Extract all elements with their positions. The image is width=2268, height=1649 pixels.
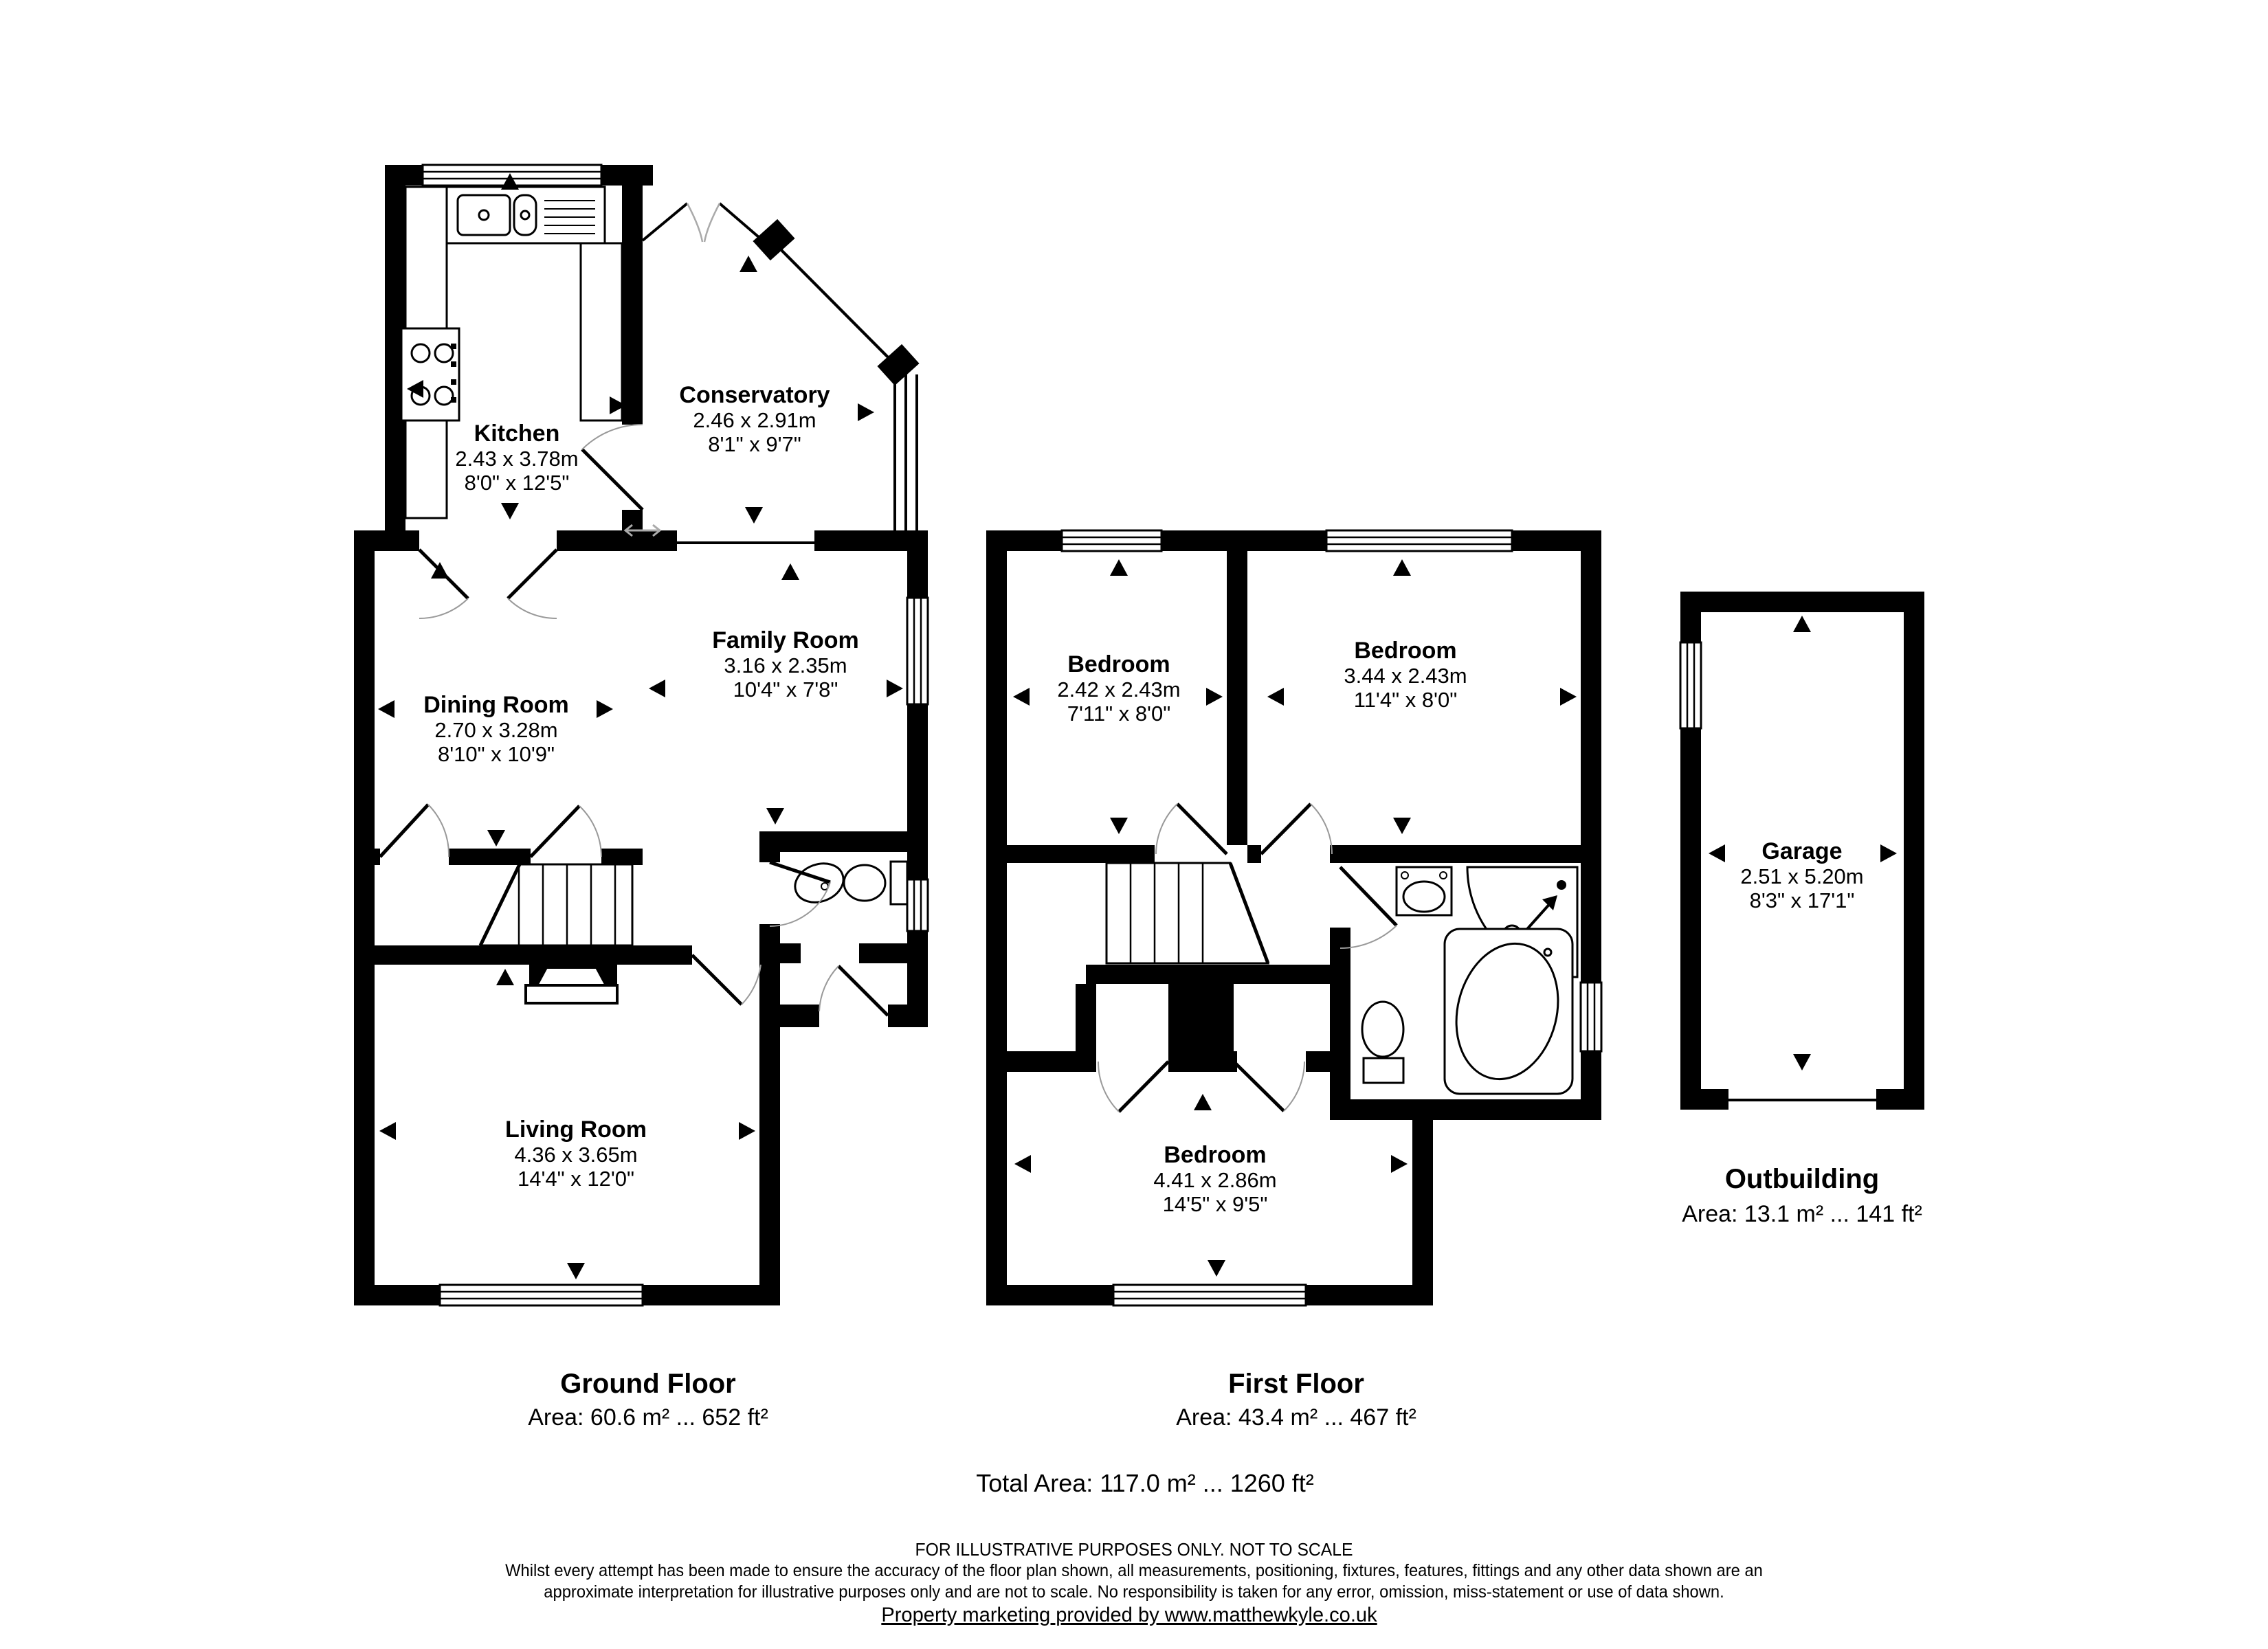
measure-arrow-icon (887, 680, 903, 697)
measure-arrow-icon (1393, 559, 1411, 576)
measure-arrow-icon (1880, 844, 1897, 862)
measure-arrow-icon (745, 507, 763, 524)
room-dim-metric: 2.42 x 2.43m (1057, 677, 1180, 702)
room-name: Bedroom (1057, 651, 1180, 677)
measure-arrow-icon (597, 700, 613, 718)
glazing-post (877, 344, 919, 385)
measure-arrow-icon (1709, 844, 1725, 862)
bathroom-window (1581, 983, 1601, 1051)
glazing-post (753, 219, 794, 260)
room-name: Bedroom (1153, 1142, 1276, 1168)
room-dim-imperial: 8'1" x 9'7" (679, 432, 830, 456)
room-name: Family Room (712, 627, 858, 653)
room-dim-imperial: 14'5" x 9'5" (1153, 1192, 1276, 1216)
room-dim-imperial: 8'0" x 12'5" (455, 471, 578, 495)
measure-arrow-icon (1793, 616, 1811, 632)
bathroom-fixtures (1362, 867, 1577, 1094)
kitchen-counter (581, 243, 622, 420)
dining-hall-door (380, 805, 449, 857)
measure-arrow-icon (1013, 688, 1030, 706)
bedroom2-window (1326, 530, 1512, 551)
room-name: Conservatory (679, 382, 830, 408)
room-label-bedroom-3: Bedroom 4.41 x 2.86m 14'5" x 9'5" (1153, 1142, 1276, 1216)
french-door-swing (704, 203, 720, 242)
ground-floor-area: Area: 60.6 m² ... 652 ft² (528, 1404, 768, 1431)
measure-arrow-icon (1110, 559, 1128, 576)
total-area: Total Area: 117.0 m² ... 1260 ft² (976, 1469, 1314, 1498)
measure-arrow-icon (1560, 688, 1577, 706)
measure-arrow-icon (1206, 688, 1223, 706)
living-room-window (440, 1285, 643, 1305)
measure-arrow-icon (496, 969, 514, 985)
front-door (819, 966, 888, 1016)
room-dim-metric: 4.36 x 3.65m (505, 1143, 647, 1167)
room-label-kitchen: Kitchen 2.43 x 3.78m 8'0" x 12'5" (455, 420, 578, 495)
kitchen-dining-doors (419, 550, 557, 618)
measure-arrow-icon (487, 830, 505, 846)
first-floor-heading: First Floor (1228, 1369, 1364, 1400)
room-label-living-room: Living Room 4.36 x 3.65m 14'4" x 12'0" (505, 1117, 647, 1191)
room-dim-metric: 3.16 x 2.35m (712, 653, 858, 677)
measure-arrow-icon (1267, 688, 1284, 706)
floorplan-page: Kitchen 2.43 x 3.78m 8'0" x 12'5" Conser… (0, 0, 2268, 1649)
outbuilding-area: Area: 13.1 m² ... 141 ft² (1682, 1201, 1922, 1228)
measure-arrow-icon (1393, 818, 1411, 834)
room-label-garage: Garage 2.51 x 5.20m 8'3" x 17'1" (1740, 838, 1863, 912)
bedroom1-door (1156, 804, 1227, 854)
ground-floor-heading: Ground Floor (560, 1369, 736, 1400)
illustrative-notice: FOR ILLUSTRATIVE PURPOSES ONLY. NOT TO S… (915, 1539, 1353, 1560)
measure-arrow-icon (1014, 1155, 1031, 1173)
family-room-window (907, 598, 928, 704)
room-label-family-room: Family Room 3.16 x 2.35m 10'4" x 7'8" (712, 627, 858, 702)
room-name: Kitchen (455, 420, 578, 447)
wc-basin (790, 857, 849, 908)
measure-arrow-icon (766, 808, 784, 824)
room-dim-imperial: 8'3" x 17'1" (1740, 888, 1863, 912)
bedroom3-door-left (1098, 1062, 1168, 1112)
room-dim-metric: 2.70 x 3.28m (423, 718, 569, 742)
measure-arrow-icon (567, 1263, 585, 1279)
measure-arrow-icon (1208, 1260, 1225, 1277)
room-dim-metric: 2.43 x 3.78m (455, 447, 578, 471)
stairs-door (531, 806, 601, 857)
measure-arrow-icon (1391, 1155, 1408, 1173)
bathtub (1443, 929, 1572, 1094)
measure-arrow-icon (781, 563, 799, 580)
measure-arrow-icon (378, 700, 394, 718)
measure-arrow-icon (1793, 1054, 1811, 1070)
conservatory-structure (625, 203, 920, 543)
bedroom3-window (1113, 1285, 1306, 1305)
room-name: Dining Room (423, 692, 569, 718)
kitchen-hob (401, 328, 459, 420)
room-name: Bedroom (1344, 638, 1467, 664)
room-dim-imperial: 14'4" x 12'0" (505, 1167, 647, 1191)
wc-fixtures (790, 857, 907, 908)
first-floor-plan (986, 530, 1601, 1305)
first-floor-stairs (1107, 863, 1268, 963)
bedroom2-door (1261, 804, 1332, 854)
room-dim-metric: 2.46 x 2.91m (679, 408, 830, 432)
room-name: Garage (1740, 838, 1863, 864)
room-dim-imperial: 10'4" x 7'8" (712, 677, 858, 702)
room-label-dining-room: Dining Room 2.70 x 3.28m 8'10" x 10'9" (423, 692, 569, 766)
measure-arrow-icon (501, 503, 519, 519)
room-dim-metric: 4.41 x 2.86m (1153, 1168, 1276, 1192)
garage-window (1680, 642, 1701, 728)
marketing-credit-link[interactable]: Property marketing provided by www.matth… (881, 1604, 1377, 1627)
measure-arrow-icon (740, 256, 757, 272)
bathroom-toilet (1362, 1002, 1403, 1083)
measure-arrow-icon (858, 403, 874, 421)
room-name: Living Room (505, 1117, 647, 1143)
french-door-swing (687, 203, 702, 242)
room-dim-imperial: 7'11" x 8'0" (1057, 702, 1180, 726)
floorplan-canvas (0, 0, 2268, 1649)
measure-arrow-icon (379, 1122, 396, 1140)
ground-floor-stairs (480, 864, 632, 945)
disclaimer-line-1: Whilst every attempt has been made to en… (505, 1561, 1763, 1581)
kitchen-conservatory-door (582, 425, 643, 510)
disclaimer-line-2: approximate interpretation for illustrat… (544, 1582, 1724, 1602)
room-dim-imperial: 8'10" x 10'9" (423, 742, 569, 766)
bedroom1-window (1062, 530, 1161, 551)
measure-arrow-icon (649, 680, 665, 697)
outbuilding-heading: Outbuilding (1725, 1164, 1879, 1195)
measure-arrow-icon (1194, 1094, 1212, 1110)
bedroom3-door-right (1234, 1062, 1304, 1111)
room-dim-imperial: 11'4" x 8'0" (1344, 688, 1467, 712)
room-dim-metric: 2.51 x 5.20m (1740, 864, 1863, 888)
room-dim-metric: 3.44 x 2.43m (1344, 664, 1467, 688)
hearth (526, 985, 617, 1003)
wc-toilet (844, 862, 907, 904)
room-label-bedroom-1: Bedroom 2.42 x 2.43m 7'11" x 8'0" (1057, 651, 1180, 726)
living-room-door (692, 955, 761, 1005)
kitchen-sink (447, 187, 605, 243)
measure-arrow-icon (739, 1122, 755, 1140)
room-label-conservatory: Conservatory 2.46 x 2.91m 8'1" x 9'7" (679, 382, 830, 456)
wc-window (907, 879, 928, 931)
first-floor-area: Area: 43.4 m² ... 467 ft² (1176, 1404, 1416, 1431)
room-label-bedroom-2: Bedroom 3.44 x 2.43m 11'4" x 8'0" (1344, 638, 1467, 712)
bathroom-sink (1397, 867, 1452, 915)
measure-arrow-icon (1110, 818, 1128, 834)
